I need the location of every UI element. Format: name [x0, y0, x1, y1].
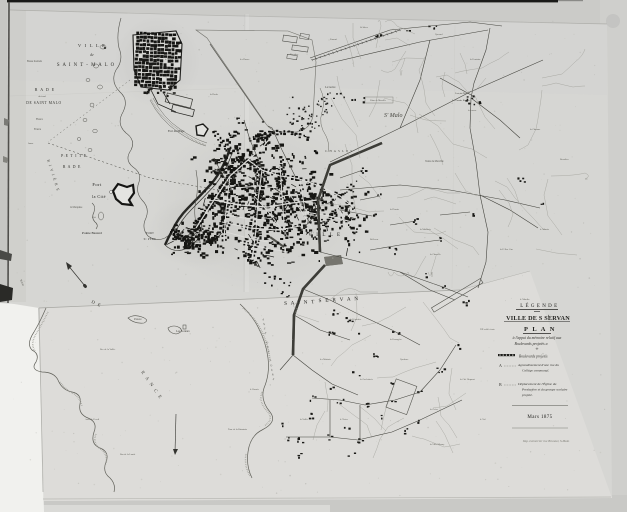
svg-text:XX vallée forte: XX vallée forte — [480, 328, 495, 331]
svg-text:Flanco: Flanco — [36, 118, 44, 121]
svg-text:le Marais: le Marais — [540, 228, 549, 231]
svg-text:la Flourie: la Flourie — [390, 208, 399, 211]
svg-text:Rocabey: Rocabey — [290, 53, 299, 56]
svg-text:la P. Rue Can: la P. Rue Can — [500, 248, 514, 251]
svg-text:le Moulin: le Moulin — [520, 298, 530, 301]
svg-text:à l'appui du mémoire relatif a: à l'appui du mémoire relatif aux — [513, 336, 562, 340]
svg-text:Vente de Marville: Vente de Marville — [425, 160, 444, 163]
svg-text:Quesnel: Quesnel — [435, 33, 443, 36]
svg-text:Les Zorieux: Les Zorieux — [176, 330, 190, 333]
svg-text:la Marquise: la Marquise — [70, 206, 83, 209]
svg-text:la Ville Mauny: la Ville Mauny — [430, 443, 445, 446]
svg-text:la Houle: la Houle — [210, 93, 218, 96]
svg-text:Fort: Fort — [92, 182, 102, 187]
svg-text:le Val: le Val — [480, 418, 486, 421]
svg-text:Quelmer: Quelmer — [400, 358, 409, 361]
svg-text:St Ideuc: St Ideuc — [360, 26, 368, 29]
svg-text:Déplacement de l'Église du: Déplacement de l'Église du — [517, 381, 557, 386]
svg-text:V I L L E: V I L L E — [308, 233, 341, 238]
svg-text:R A D E: R A D E — [63, 165, 81, 169]
svg-text:DE SAINT MALO: DE SAINT MALO — [26, 101, 62, 105]
svg-text:Boulevards projetés a: Boulevards projetés a — [514, 342, 547, 346]
svg-text:Anse de Pezeil: Anse de Pezeil — [85, 418, 100, 421]
svg-text:la Passagère: la Passagère — [390, 338, 402, 341]
svg-text:Tour de la Briantais: Tour de la Briantais — [228, 428, 247, 431]
svg-text:France: France — [34, 128, 42, 131]
svg-text:Boulevards projetés: Boulevards projetés — [519, 355, 548, 359]
svg-text:Porte de Paramé: Porte de Paramé — [455, 93, 469, 95]
svg-text:Bas de la Lande: Bas de la Lande — [120, 453, 135, 456]
svg-text:la Moinerie: la Moinerie — [420, 228, 431, 231]
svg-text:PORT: PORT — [146, 232, 155, 235]
svg-text:A: A — [499, 363, 502, 368]
svg-text:B: B — [499, 382, 502, 387]
svg-text:C H A S L E S: C H A S L E S — [325, 149, 353, 153]
svg-text:Jaune: Jaune — [28, 142, 33, 145]
svg-text:PORT: PORT — [188, 233, 198, 237]
svg-text:la Louvre: la Louvre — [468, 110, 476, 112]
svg-text:la Chaume: la Chaume — [530, 128, 540, 131]
svg-text:la Pépinière: la Pépinière — [350, 318, 361, 321]
svg-text:Fort du Mage: Fort du Mage — [168, 129, 185, 133]
svg-text:Usine de Marville: Usine de Marville — [370, 100, 386, 102]
svg-text:Collège communal.: Collège communal. — [522, 369, 549, 373]
svg-text:le Rosais: le Rosais — [250, 388, 259, 391]
svg-text:S' Malo: S' Malo — [384, 113, 402, 119]
svg-text:Pasteur: Pasteur — [134, 318, 142, 321]
svg-text:Mars 1875: Mars 1875 — [527, 415, 552, 420]
svg-text:SOLIDOR: SOLIDOR — [184, 240, 201, 244]
svg-text:la Cité Hoquart: la Cité Hoquart — [460, 378, 475, 381]
svg-text:la Chapelle: la Chapelle — [430, 253, 441, 256]
svg-text:les Dunes: les Dunes — [240, 58, 249, 61]
svg-text:Bec de la Vallée: Bec de la Vallée — [100, 348, 115, 351]
svg-text:S A I N T - M A L O: S A I N T - M A L O — [57, 63, 115, 68]
svg-text:la Grève: la Grève — [430, 408, 438, 411]
svg-text:Bellevue: Bellevue — [370, 238, 379, 241]
svg-text:La Grande Rivière: La Grande Rivière — [452, 99, 470, 102]
svg-text:les Mottais: les Mottais — [320, 358, 331, 361]
svg-text:P E T I T E: P E T I T E — [61, 154, 87, 158]
svg-text:le Sillon: le Sillon — [165, 58, 174, 61]
svg-text:projeté.: projeté. — [521, 393, 533, 397]
svg-text:Cité: Cité — [92, 216, 96, 219]
svg-text:Basse houlade: Basse houlade — [27, 60, 43, 63]
svg-text:la Fontaine: la Fontaine — [470, 58, 481, 61]
svg-text:L É G E N D E: L É G E N D E — [520, 303, 558, 309]
svg-text:la Cité: la Cité — [92, 194, 106, 199]
svg-text:Paramé: Paramé — [330, 38, 337, 41]
svg-text:de: de — [90, 53, 94, 57]
svg-text:La Grève: La Grève — [325, 86, 336, 89]
svg-text:Beaulieu: Beaulieu — [560, 158, 569, 161]
svg-text:la Goeletterie: la Goeletterie — [360, 378, 373, 381]
svg-text:le Tertre: le Tertre — [340, 418, 348, 421]
svg-text:Presbytère et du groupe scolai: Presbytère et du groupe scolaire — [521, 388, 568, 392]
svg-text:St PÈRE: St PÈRE — [144, 238, 157, 241]
svg-text:la Vallée: la Vallée — [300, 418, 308, 421]
svg-text:du fond: du fond — [38, 95, 46, 98]
svg-text:Pointe Bastard: Pointe Bastard — [82, 231, 102, 235]
svg-text:P L A N: P L A N — [524, 326, 556, 333]
svg-text:V I L L E: V I L L E — [78, 43, 106, 48]
svg-text:Agrandissement d'une rue du: Agrandissement d'une rue du — [517, 363, 559, 367]
svg-text:VILLE DE S SERVAN: VILLE DE S SERVAN — [506, 315, 570, 322]
svg-text:R A D E: R A D E — [35, 87, 55, 92]
